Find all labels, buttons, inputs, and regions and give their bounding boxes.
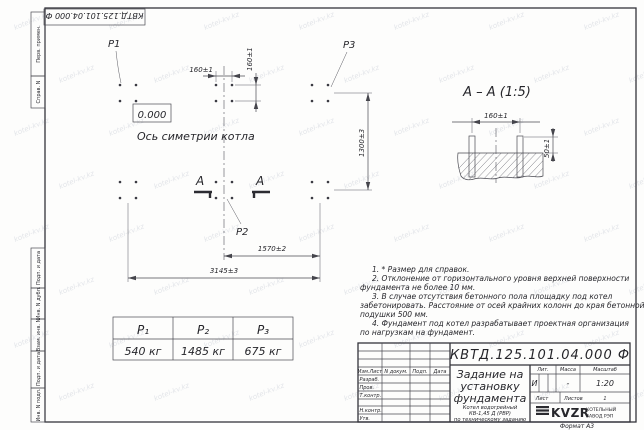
p2-leader <box>227 199 241 224</box>
watermark-text: kotel-kv.kz <box>488 222 526 244</box>
watermark-text: kotel-kv.kz <box>248 381 286 403</box>
drawing-sheet: kotel-kv.kzkotel-kv.kzkotel-kv.kzkotel-k… <box>0 0 644 430</box>
scale-label: Масштаб <box>593 367 617 373</box>
drawing-subtitle-line: по техническому заданию <box>454 417 527 423</box>
mass-value: - <box>567 379 570 388</box>
p3-label: P3 <box>343 40 355 51</box>
format-label: Формат А3 <box>560 423 594 430</box>
watermark-text: kotel-kv.kz <box>108 222 146 244</box>
watermark-text: kotel-kv.kz <box>58 275 96 297</box>
margin-label: Инв. N подл. <box>36 388 42 421</box>
watermark-text: kotel-kv.kz <box>58 169 96 191</box>
section-a-a: А – А (1:5) 160±1 50±1 <box>444 85 569 184</box>
margin-stamp-column: Перв. примен. Справ. N Подп. и дата Инв.… <box>31 12 45 422</box>
tb-row-razrab: Разраб. <box>360 377 380 383</box>
sheet-label: Лист <box>535 396 550 402</box>
load-table-header: P₂ <box>197 323 209 337</box>
note-line: 2. Отклонение от горизонтального уровня … <box>372 274 629 283</box>
foundation-plan: P1 P3 P2 0.000 Ось симетрии котла А А 16… <box>108 39 372 282</box>
load-table-value: 1485 кг <box>181 345 225 358</box>
section-title: А – А (1:5) <box>462 85 531 100</box>
level-mark: 0.000 <box>138 110 167 121</box>
note-line: фундамента не более 10 мм. <box>360 283 475 292</box>
title-block: Изм.Лист N докум. Подп. Дата Разраб. Про… <box>358 343 630 423</box>
load-table: P₁ P₂ P₃ 540 кг 1485 кг 675 кг <box>113 317 293 360</box>
load-table-value: 540 кг <box>125 345 162 358</box>
symmetry-axis-label: Ось симетрии котла <box>137 130 255 143</box>
section-dim-50: 50±1 <box>543 139 551 158</box>
tb-header-podp: Подп. <box>412 369 427 375</box>
watermark-text: kotel-kv.kz <box>298 328 336 350</box>
section-letter-left: А <box>195 174 204 188</box>
watermark-text: kotel-kv.kz <box>153 63 191 85</box>
watermark-text: kotel-kv.kz <box>393 116 431 138</box>
watermark-text: kotel-kv.kz <box>393 10 431 32</box>
watermark-text: kotel-kv.kz <box>298 222 336 244</box>
section-dim-160: 160±1 <box>484 112 508 120</box>
note-line: 4. Фундамент под котел разрабатывает про… <box>372 319 629 328</box>
watermark-text: kotel-kv.kz <box>58 381 96 403</box>
watermark-text: kotel-kv.kz <box>583 10 621 32</box>
note-line: подушки 500 мм. <box>360 310 428 319</box>
mass-label: Масса <box>560 367 576 373</box>
margin-label: Справ. N <box>36 80 42 103</box>
tb-row-prov: Пров. <box>360 385 375 391</box>
watermark-text: kotel-kv.kz <box>298 116 336 138</box>
note-line: 3. В случае отсутствия бетонного пола пл… <box>372 292 612 301</box>
margin-label: Инв. N дубл. <box>36 286 42 319</box>
logo-text: KVZR <box>551 406 590 420</box>
dim-160-vertical: 160±1 <box>246 47 254 71</box>
watermark-text: kotel-kv.kz <box>393 222 431 244</box>
notes-block: 1. * Размер для справок. 2. Отклонение о… <box>360 265 644 337</box>
sheets-value: 1 <box>603 396 606 402</box>
load-table-value: 675 кг <box>245 345 282 358</box>
load-table-header: P₃ <box>257 323 269 337</box>
tb-row-nkontr: Н.контр. <box>360 408 382 414</box>
tb-header-doc: N докум. <box>384 369 407 375</box>
margin-label: Взам. инв. N <box>36 319 42 352</box>
watermark-text: kotel-kv.kz <box>533 169 571 191</box>
watermark-text: kotel-kv.kz <box>58 63 96 85</box>
watermark-text: kotel-kv.kz <box>248 169 286 191</box>
sheets-label: Листов <box>563 396 583 402</box>
logo-caption: ЗАВОД РЭП <box>586 414 613 420</box>
watermark-text: kotel-kv.kz <box>583 328 621 350</box>
watermark-text: kotel-kv.kz <box>298 10 336 32</box>
drawing-title-line: фундамента <box>454 392 527 405</box>
p2-label: P2 <box>236 227 248 238</box>
watermark-text: kotel-kv.kz <box>153 381 191 403</box>
watermark-text: kotel-kv.kz <box>153 169 191 191</box>
watermark-text: kotel-kv.kz <box>343 63 381 85</box>
watermark-text: kotel-kv.kz <box>203 10 241 32</box>
watermark-text: kotel-kv.kz <box>343 169 381 191</box>
tb-header-data: Дата <box>433 369 447 375</box>
p1-leader <box>116 51 121 83</box>
note-line: забетонировать. Расстояние от осей крайн… <box>360 301 644 310</box>
tb-row-utv: Утв. <box>360 416 371 422</box>
watermark-text: kotel-kv.kz <box>153 275 191 297</box>
note-line: по нагрузкам на фундамент. <box>360 328 475 337</box>
dim-3145: 3145±3 <box>210 267 238 275</box>
dim-160-horizontal: 160±1 <box>189 66 213 74</box>
watermark-text: kotel-kv.kz <box>583 116 621 138</box>
kvzr-logo-icon <box>536 406 549 415</box>
doc-number-inverted: КВТД.125.101.04.000 Ф <box>45 11 143 20</box>
dim-1570: 1570±2 <box>258 245 287 253</box>
tb-header-izm: Изм.Лист <box>358 369 384 375</box>
watermark-text: kotel-kv.kz <box>488 328 526 350</box>
dim-1300: 1300±3 <box>358 129 366 157</box>
load-table-header: P₁ <box>137 323 149 337</box>
doc-number: КВТД.125.101.04.000 Ф <box>450 348 630 363</box>
logo-caption: КОТЕЛЬНЫЙ <box>586 406 616 413</box>
margin-label: Перв. примен. <box>36 25 42 63</box>
note-line: 1. * Размер для справок. <box>372 265 469 274</box>
lit-label: Лит. <box>536 367 549 373</box>
watermark-text: kotel-kv.kz <box>583 222 621 244</box>
section-letter-right: А <box>255 174 264 188</box>
margin-label: Подп. и дата <box>36 251 42 285</box>
scale-value: 1:20 <box>596 379 614 388</box>
lit-value: И <box>532 379 538 388</box>
watermark-text: kotel-kv.kz <box>533 63 571 85</box>
watermark-text: kotel-kv.kz <box>488 10 526 32</box>
tb-row-tkontr: Т.контр. <box>360 393 382 399</box>
anchor-bolt-right <box>517 136 523 177</box>
watermark-text: kotel-kv.kz <box>438 63 476 85</box>
watermark-layer: kotel-kv.kzkotel-kv.kzkotel-kv.kzkotel-k… <box>13 10 644 403</box>
margin-label: Подп. и дата <box>36 352 42 386</box>
watermark-text: kotel-kv.kz <box>248 275 286 297</box>
p1-label: P1 <box>108 39 120 50</box>
